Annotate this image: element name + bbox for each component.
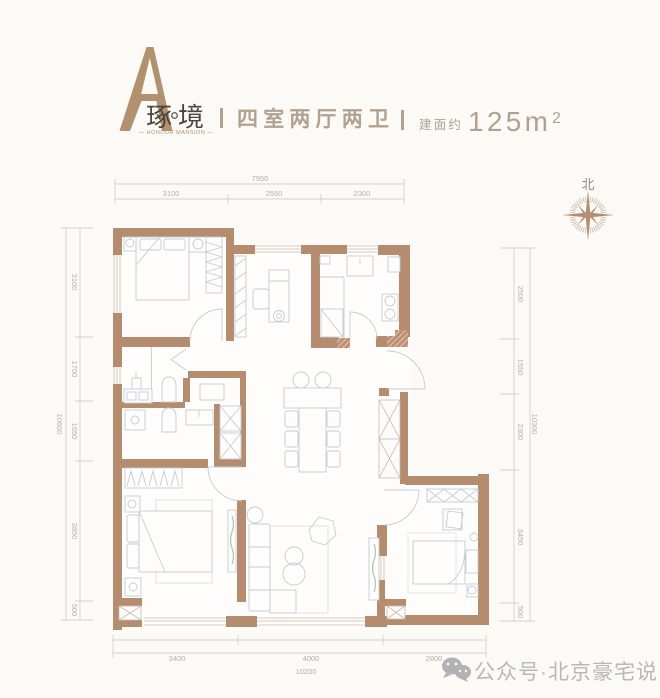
svg-text:500: 500 xyxy=(516,606,525,619)
svg-text:10600: 10600 xyxy=(55,414,64,435)
svg-text:2550: 2550 xyxy=(266,189,283,198)
svg-text:1550: 1550 xyxy=(516,359,525,376)
svg-text:2500: 2500 xyxy=(516,286,525,303)
svg-text:3450: 3450 xyxy=(516,529,525,546)
svg-text:境: 境 xyxy=(178,102,204,132)
svg-text:3100: 3100 xyxy=(163,189,180,198)
svg-text:公众号·北京豪宅说: 公众号·北京豪宅说 xyxy=(474,661,658,684)
svg-text:四室两厅两卫: 四室两厅两卫 xyxy=(237,107,394,131)
svg-text:建面约: 建面约 xyxy=(419,117,463,132)
svg-text:3850: 3850 xyxy=(70,523,79,540)
svg-text:3400: 3400 xyxy=(169,654,186,663)
svg-text:125m: 125m xyxy=(468,106,551,137)
svg-text:10300: 10300 xyxy=(530,414,539,435)
svg-text:— HONOUR MANSION —: — HONOUR MANSION — xyxy=(139,130,214,136)
svg-text:2800: 2800 xyxy=(426,654,443,663)
svg-text:2300: 2300 xyxy=(354,189,371,198)
svg-text:2: 2 xyxy=(552,110,561,127)
svg-text:2300: 2300 xyxy=(516,424,525,441)
svg-text:1700: 1700 xyxy=(70,361,79,378)
svg-text:北: 北 xyxy=(581,177,594,192)
svg-text:3100: 3100 xyxy=(70,274,79,291)
svg-text:琢: 琢 xyxy=(146,102,172,132)
svg-text:10200: 10200 xyxy=(296,667,317,676)
svg-text:1650: 1650 xyxy=(70,423,79,440)
svg-text:4000: 4000 xyxy=(303,654,320,663)
svg-text:500: 500 xyxy=(70,604,79,617)
svg-text:7950: 7950 xyxy=(252,174,269,183)
